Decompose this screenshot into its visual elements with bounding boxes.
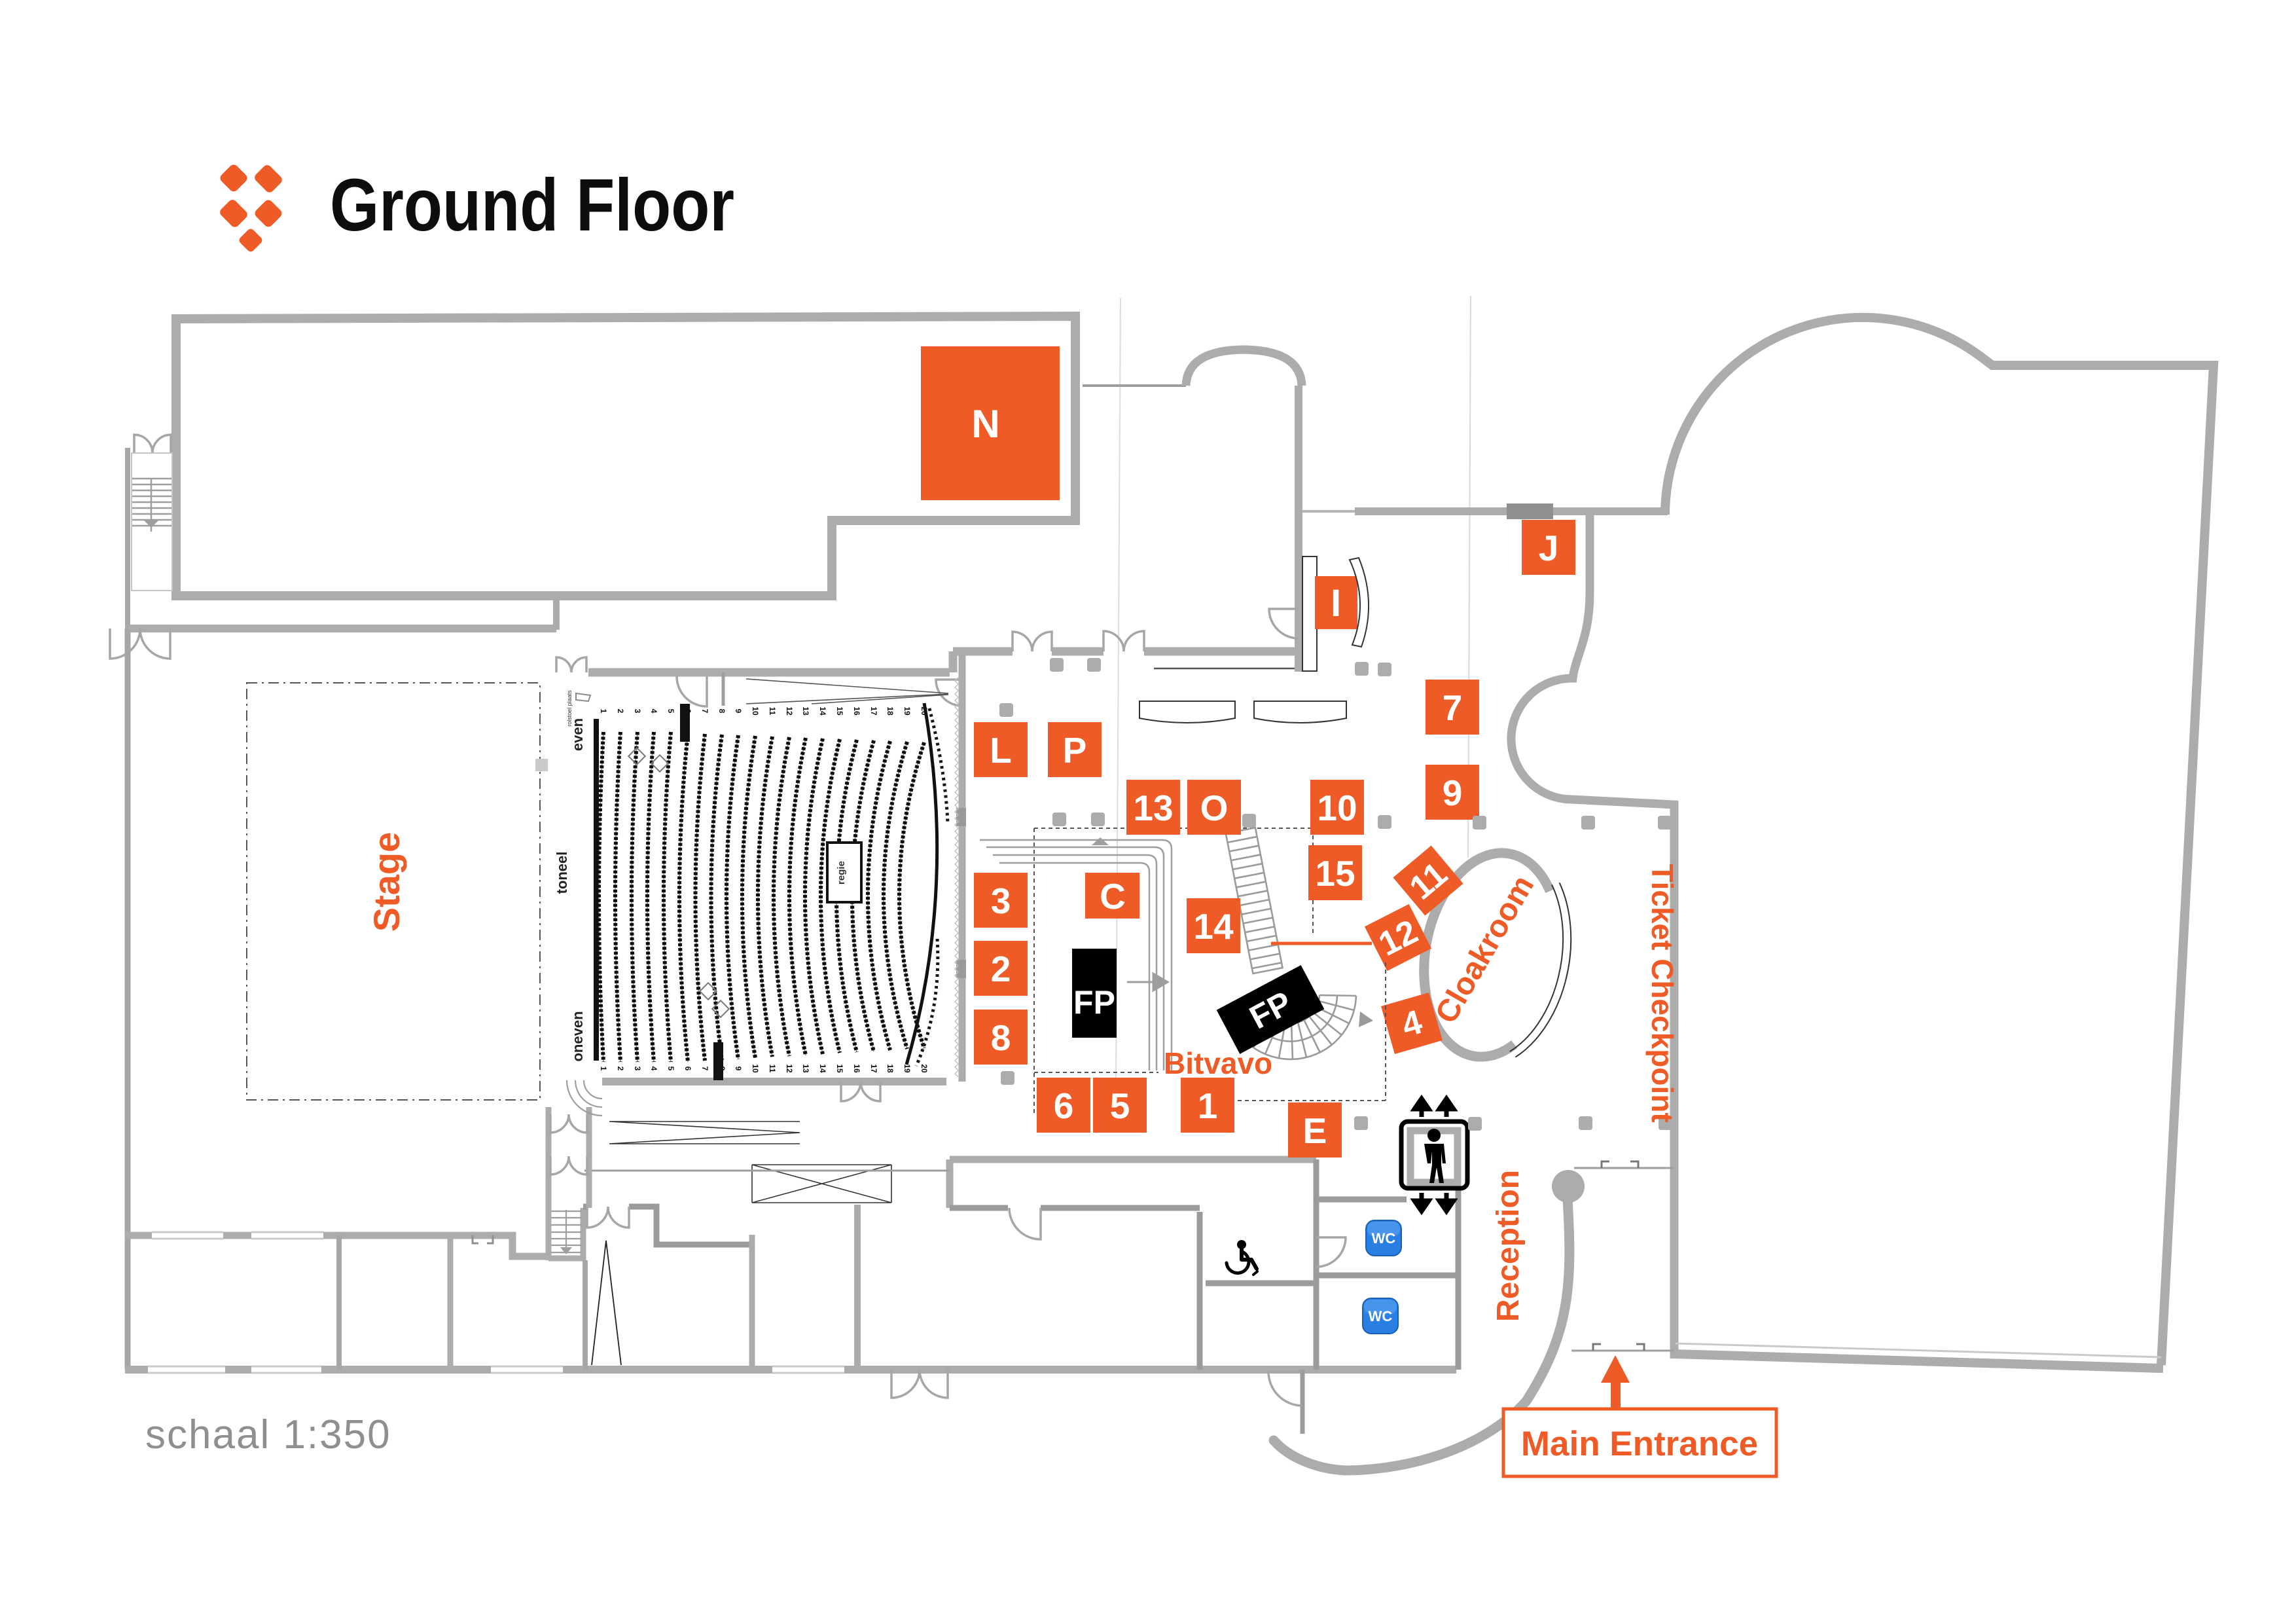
svg-text:4: 4 xyxy=(649,709,658,714)
svg-text:3: 3 xyxy=(633,709,642,714)
svg-text:6: 6 xyxy=(1054,1085,1074,1126)
svg-text:5: 5 xyxy=(666,709,675,714)
svg-text:I: I xyxy=(1331,582,1341,625)
svg-text:14: 14 xyxy=(818,706,827,716)
svg-text:8: 8 xyxy=(717,709,726,714)
svg-text:14: 14 xyxy=(1193,906,1234,947)
svg-text:20: 20 xyxy=(920,1064,929,1073)
svg-text:1: 1 xyxy=(599,1067,608,1071)
svg-text:19: 19 xyxy=(903,1064,912,1073)
svg-text:Reception: Reception xyxy=(1491,1170,1526,1322)
svg-text:20: 20 xyxy=(920,706,929,716)
svg-text:1: 1 xyxy=(599,709,608,714)
svg-text:Ticket Checkpoint: Ticket Checkpoint xyxy=(1645,864,1679,1122)
svg-text:WC: WC xyxy=(1369,1308,1393,1324)
svg-text:13: 13 xyxy=(801,1064,810,1073)
svg-text:N: N xyxy=(971,402,999,446)
svg-text:regie: regie xyxy=(836,861,847,884)
svg-text:12: 12 xyxy=(785,706,794,716)
svg-text:9: 9 xyxy=(734,1067,743,1071)
svg-text:C: C xyxy=(1100,876,1126,917)
svg-text:17: 17 xyxy=(869,1064,878,1073)
svg-text:rolstoel plaats: rolstoel plaats xyxy=(566,690,573,727)
svg-text:WC: WC xyxy=(1372,1230,1396,1247)
svg-text:FP: FP xyxy=(1073,984,1115,1021)
svg-text:toneel: toneel xyxy=(554,852,570,894)
svg-text:15: 15 xyxy=(1315,853,1355,894)
svg-text:15: 15 xyxy=(835,1064,844,1073)
svg-text:8: 8 xyxy=(991,1017,1011,1058)
svg-text:J: J xyxy=(1539,528,1559,568)
svg-text:19: 19 xyxy=(903,706,912,716)
svg-text:7: 7 xyxy=(1443,687,1463,728)
svg-text:11: 11 xyxy=(768,1065,777,1073)
svg-text:10: 10 xyxy=(751,706,760,716)
svg-text:11: 11 xyxy=(768,707,777,716)
svg-text:2: 2 xyxy=(991,949,1011,989)
svg-text:L: L xyxy=(990,730,1012,771)
svg-text:Ground Floor: Ground Floor xyxy=(330,164,734,246)
svg-text:9: 9 xyxy=(734,709,743,714)
svg-text:3: 3 xyxy=(633,1067,642,1071)
svg-text:18: 18 xyxy=(886,1064,895,1073)
svg-text:O: O xyxy=(1200,788,1229,828)
svg-text:6: 6 xyxy=(683,1067,692,1071)
svg-text:schaal 1:350: schaal 1:350 xyxy=(145,1412,391,1457)
svg-text:4: 4 xyxy=(649,1067,658,1071)
svg-text:10: 10 xyxy=(751,1064,760,1073)
svg-text:Stage: Stage xyxy=(366,832,407,932)
svg-text:5: 5 xyxy=(1110,1085,1130,1126)
svg-text:E: E xyxy=(1303,1110,1327,1151)
svg-text:1: 1 xyxy=(1198,1085,1218,1126)
svg-text:12: 12 xyxy=(785,1064,794,1073)
svg-text:7: 7 xyxy=(700,709,709,714)
svg-text:5: 5 xyxy=(666,1067,675,1071)
svg-text:3: 3 xyxy=(991,881,1011,921)
svg-text:2: 2 xyxy=(616,1067,625,1071)
svg-text:oneven: oneven xyxy=(569,1011,586,1061)
svg-text:13: 13 xyxy=(1133,788,1173,828)
svg-text:16: 16 xyxy=(852,706,861,716)
svg-text:P: P xyxy=(1063,730,1087,771)
svg-text:18: 18 xyxy=(886,706,895,716)
svg-text:13: 13 xyxy=(801,706,810,716)
svg-text:9: 9 xyxy=(1443,773,1463,813)
svg-text:14: 14 xyxy=(818,1064,827,1073)
svg-text:2: 2 xyxy=(616,709,625,714)
svg-text:15: 15 xyxy=(835,706,844,716)
svg-text:10: 10 xyxy=(1317,788,1357,828)
svg-text:16: 16 xyxy=(852,1064,861,1073)
svg-text:7: 7 xyxy=(700,1067,709,1071)
svg-text:17: 17 xyxy=(869,706,878,716)
svg-text:Bitvavo: Bitvavo xyxy=(1164,1046,1272,1080)
svg-text:Main Entrance: Main Entrance xyxy=(1521,1425,1758,1463)
